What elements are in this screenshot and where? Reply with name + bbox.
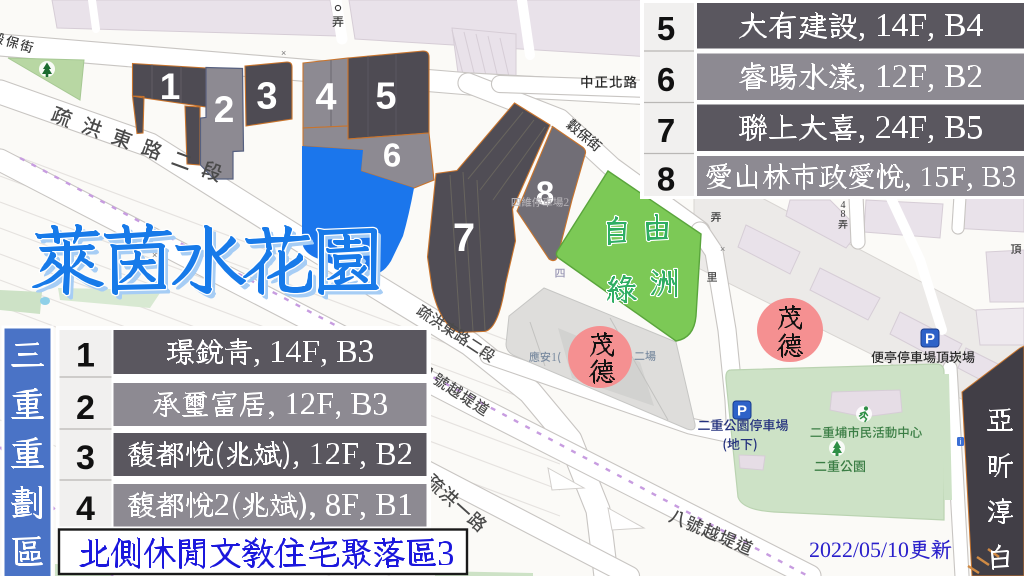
svg-text:1: 1 xyxy=(76,337,95,375)
svg-text:8: 8 xyxy=(657,160,675,197)
svg-text:3: 3 xyxy=(76,439,95,477)
svg-text:7: 7 xyxy=(453,216,475,260)
svg-text:3: 3 xyxy=(256,75,277,117)
svg-text:1: 1 xyxy=(160,66,181,107)
svg-text:5: 5 xyxy=(375,75,396,117)
svg-text:4: 4 xyxy=(315,76,336,118)
svg-text:4: 4 xyxy=(76,490,95,528)
svg-text:i: i xyxy=(960,438,962,447)
svg-text:×: × xyxy=(281,48,286,58)
svg-text:6: 6 xyxy=(657,61,675,98)
svg-text:8: 8 xyxy=(841,209,846,220)
svg-text:2: 2 xyxy=(214,89,235,130)
svg-text:2: 2 xyxy=(76,389,95,427)
svg-text:6: 6 xyxy=(383,137,401,174)
svg-text:P: P xyxy=(737,403,747,420)
svg-text:7: 7 xyxy=(657,112,675,149)
svg-text:5: 5 xyxy=(657,10,675,47)
svg-text:×: × xyxy=(720,244,725,254)
svg-text:P: P xyxy=(925,331,935,348)
